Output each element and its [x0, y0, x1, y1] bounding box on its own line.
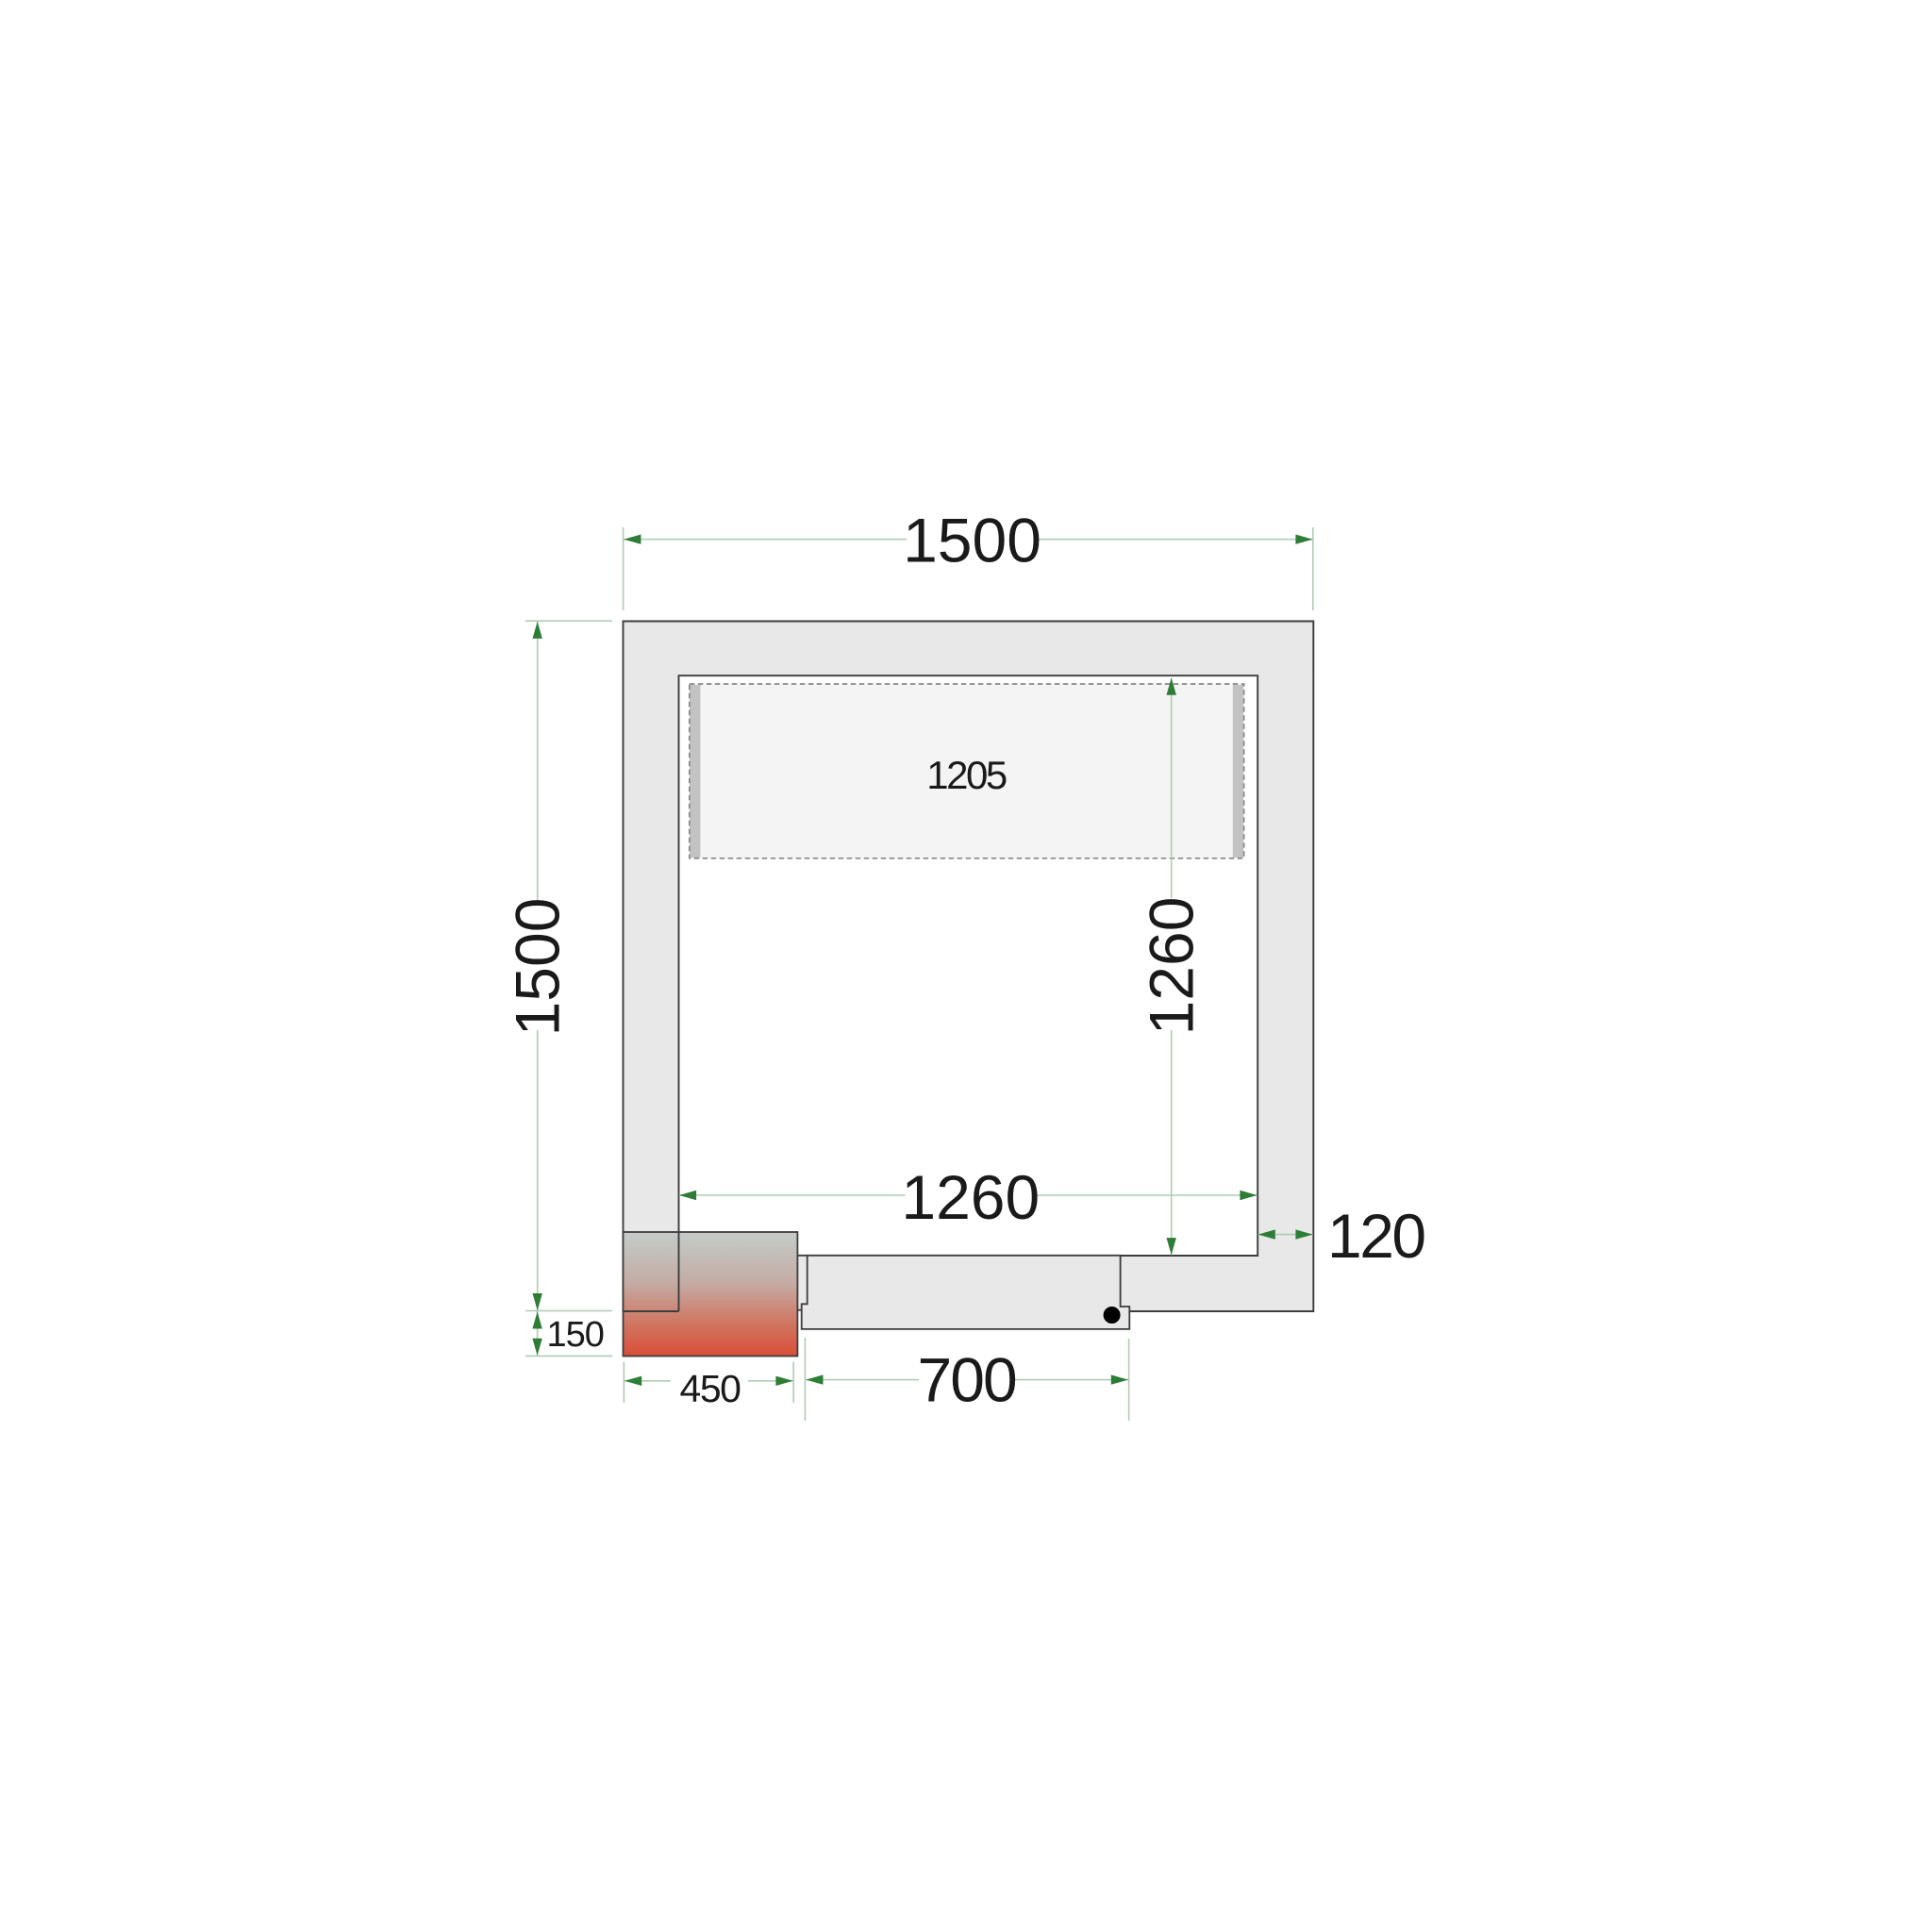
svg-text:150: 150	[546, 1315, 603, 1355]
svg-text:1205: 1205	[926, 753, 1007, 797]
svg-text:450: 450	[680, 1367, 741, 1410]
svg-text:120: 120	[1327, 1201, 1424, 1271]
svg-text:1500: 1500	[503, 898, 573, 1037]
svg-text:1260: 1260	[1136, 897, 1206, 1036]
svg-text:1500: 1500	[903, 506, 1041, 575]
svg-text:700: 700	[918, 1344, 1016, 1414]
svg-text:1260: 1260	[901, 1162, 1040, 1232]
